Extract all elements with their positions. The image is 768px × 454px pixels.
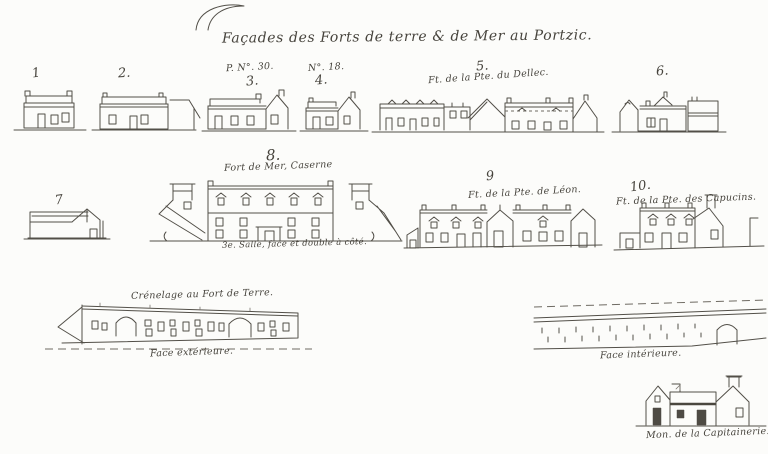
fort-facades-line-art — [0, 0, 768, 454]
facade-4-drawing — [300, 92, 368, 131]
facade-2-number: 2. — [117, 66, 130, 82]
captaincy-house-drawing — [636, 376, 766, 426]
curtain-wall-interior-drawing — [534, 300, 766, 349]
facade-7-drawing — [24, 209, 110, 239]
facade-9-drawing — [404, 205, 602, 248]
facade-9-number: 9 — [485, 169, 495, 185]
sheet-title: Façades des Forts de terre & de Mer au P… — [222, 27, 592, 46]
facade-6-drawing — [612, 92, 726, 132]
scanned-drawing-page: Façades des Forts de terre & de Mer au P… — [0, 0, 768, 454]
facade-1-drawing — [14, 91, 86, 130]
facade-8-barracks-drawing — [150, 181, 402, 241]
facade-6-number: 6. — [655, 63, 669, 79]
facade-10-number: 10. — [629, 178, 652, 196]
facade-5-drawing — [372, 95, 604, 132]
facade-2-drawing — [92, 93, 200, 130]
title-swash-flourish — [196, 5, 244, 30]
facade-3-drawing — [202, 90, 296, 131]
curtain-wall-exterior-drawing — [45, 303, 312, 349]
facade-3-number: 3. — [245, 73, 259, 89]
facade-4-number: 4. — [314, 72, 328, 88]
